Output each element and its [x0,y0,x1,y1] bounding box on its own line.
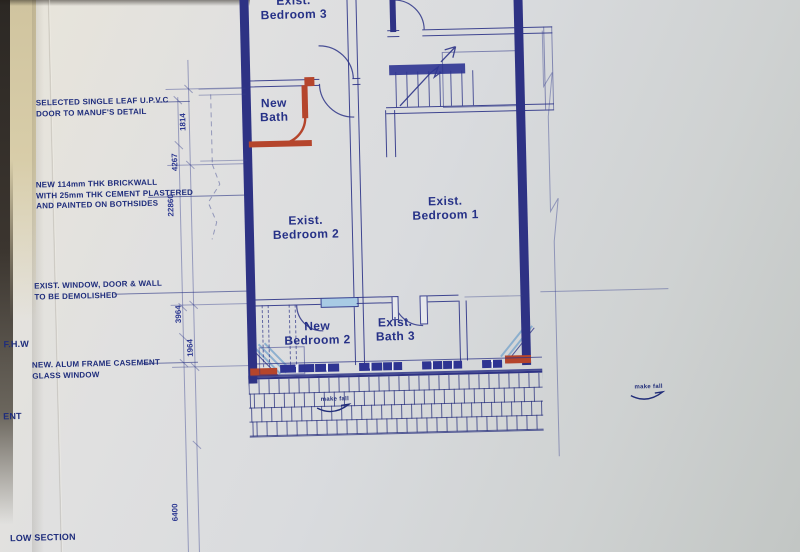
dimension-22860: 22860 [166,183,177,227]
note-fhw: F.H.W [3,339,29,350]
wall-stub-bedroom1 [385,110,396,157]
dimension-1964: 1964 [185,326,196,370]
door-leaf-stairwell [389,0,396,32]
note-demolish: EXIST. WINDOW, DOOR & WALL TO BE DEMOLIS… [34,279,162,303]
room-label-exist-bedroom-2: Exist.Bedroom 2 [259,213,354,242]
room-label-exist-bedroom-1: Exist.Bedroom 1 [396,194,495,223]
stair-landing [442,50,520,108]
wall-stair-top-stub [387,30,399,37]
brick-hatch-band [248,371,543,438]
wall-bath3-right [459,300,468,360]
dimension-3964: 3964 [173,292,184,336]
plan-linework [0,0,800,552]
new-wall-bath-stub [304,77,314,86]
wall-bath3-top-right [427,295,458,303]
dimension-6400: 6400 [170,490,181,534]
room-label-exist-bath-3: Exist.Bath 3 [359,315,432,344]
demolished-wall-left [199,88,246,96]
drawing-sheet: make fall make fall Exist.Bedroom 3 NewB… [0,0,800,552]
dimension-4267: 4267 [170,140,181,184]
new-wall-bath-vertical [301,85,308,118]
dimension-1814: 1814 [178,100,189,144]
demolished-wall-lines [206,94,221,239]
wall-right-outer-line [543,26,554,109]
room-label-exist-bedroom-3: Exist.Bedroom 3 [249,0,338,22]
room-label-new-bath: NewBath [248,96,301,124]
note-edge-partial: ENT [3,411,22,422]
room-label-new-bedroom-2: NewBedroom 2 [269,319,366,348]
casement-window-unit [315,363,339,372]
casement-window-unit [443,361,462,369]
wall-bath3-top-left [356,296,394,304]
casement-window-unit [422,361,442,369]
corner-window-box [259,346,306,375]
new-door-lintel [320,297,358,308]
floor-plan-photo: make fall make fall Exist.Bedroom 3 NewB… [0,0,800,552]
note-upvc-door: SELECTED SINGLE LEAF U.P.V.C DOOR TO MAN… [36,95,169,119]
wall-hall-jamb [352,78,360,85]
make-fall-label: make fall [313,396,357,403]
note-casement-window: NEW. ALUM FRAME CASEMENT GLASS WINDOW [32,358,161,382]
casement-window-unit [383,362,402,370]
casement-window-unit [482,360,502,368]
make-fall-label: make fall [627,384,671,391]
note-section-title: LOW SECTION [10,532,76,544]
casement-window-unit [359,362,382,371]
